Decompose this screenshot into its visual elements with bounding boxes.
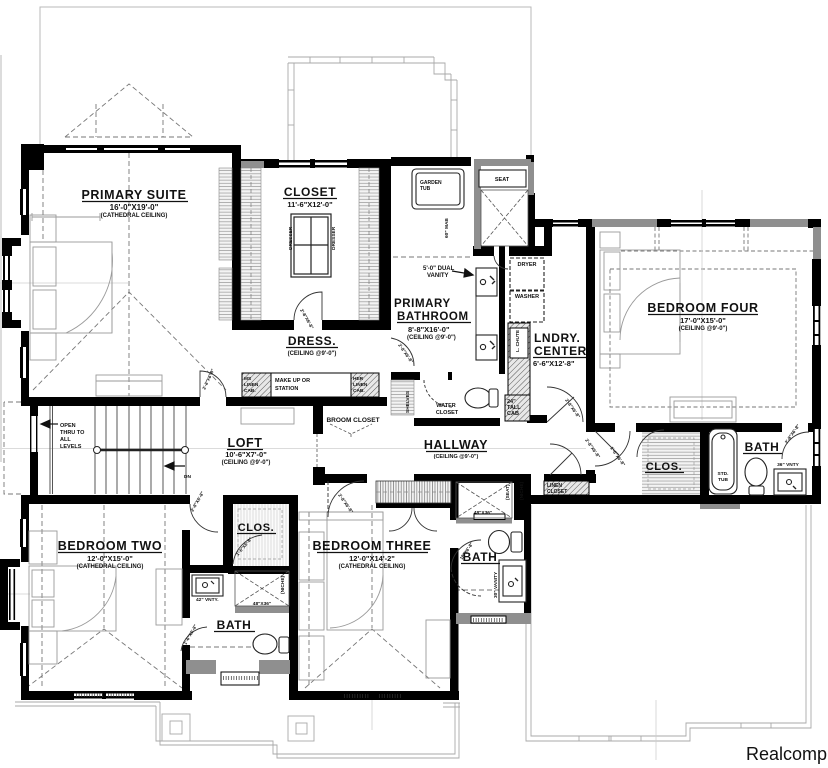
svg-text:(CEILING @9'-0"): (CEILING @9'-0")	[288, 351, 337, 357]
svg-text:Realcomp: Realcomp	[746, 744, 827, 764]
svg-text:6'-6"X12'-8": 6'-6"X12'-8"	[533, 359, 575, 368]
svg-text:36" VNTY: 36" VNTY	[777, 462, 800, 468]
svg-text:VANITY: VANITY	[427, 273, 449, 279]
svg-text:BEDROOM FOUR: BEDROOM FOUR	[647, 301, 758, 315]
svg-text:BEDROOM THREE: BEDROOM THREE	[313, 539, 432, 553]
svg-text:PRIMARY: PRIMARY	[394, 298, 451, 310]
svg-text:(NICHE): (NICHE)	[519, 481, 525, 500]
svg-text:BATH: BATH	[217, 618, 252, 632]
svg-text:SHELVES: SHELVES	[405, 390, 411, 413]
svg-text:LINEN: LINEN	[353, 382, 368, 388]
svg-text:12'-0"X15'-0": 12'-0"X15'-0"	[87, 554, 133, 563]
svg-text:BATHROOM: BATHROOM	[397, 311, 469, 323]
svg-text:17'-0"X15'-0": 17'-0"X15'-0"	[680, 316, 726, 325]
svg-text:10'-6"X7'-0": 10'-6"X7'-0"	[225, 450, 267, 459]
svg-text:BROOM CLOSET: BROOM CLOSET	[326, 417, 379, 424]
svg-text:DRESSER: DRESSER	[331, 226, 337, 250]
svg-text:WATER: WATER	[436, 403, 455, 409]
svg-text:LEVELS: LEVELS	[60, 444, 82, 450]
svg-text:LINEN: LINEN	[244, 382, 259, 388]
svg-text:48"X36": 48"X36"	[474, 510, 492, 516]
svg-text:SEAT: SEAT	[495, 177, 510, 183]
svg-text:(NICHE): (NICHE)	[280, 575, 286, 594]
svg-text:TUB: TUB	[420, 186, 431, 192]
svg-text:(CEILING @9'-0"): (CEILING @9'-0")	[407, 335, 456, 341]
svg-text:THRU TO: THRU TO	[60, 430, 85, 436]
svg-text:OPEN: OPEN	[60, 423, 76, 429]
svg-text:(CATHEDRAL CEILING): (CATHEDRAL CEILING)	[77, 564, 144, 570]
svg-text:5'-0" DUAL: 5'-0" DUAL	[423, 266, 455, 272]
svg-text:30" VANITY: 30" VANITY	[493, 571, 499, 598]
svg-text:HER: HER	[353, 376, 364, 382]
svg-text:60" MAB: 60" MAB	[444, 218, 450, 238]
svg-text:STATION: STATION	[275, 386, 298, 392]
svg-text:CAB.: CAB.	[353, 388, 365, 394]
svg-text:WASHER: WASHER	[515, 294, 539, 300]
svg-text:CLOSET: CLOSET	[436, 410, 459, 416]
svg-text:CAB: CAB	[507, 411, 519, 417]
svg-text:MAKE UP OR: MAKE UP OR	[275, 378, 310, 384]
svg-text:16'-0"X19'-0": 16'-0"X19'-0"	[110, 203, 159, 212]
svg-text:CAB.: CAB.	[244, 388, 256, 394]
svg-text:CLOSET: CLOSET	[547, 489, 567, 495]
svg-text:ALL: ALL	[60, 437, 71, 443]
svg-text:DRYER: DRYER	[517, 262, 536, 268]
svg-text:LNDRY.: LNDRY.	[534, 331, 581, 345]
svg-text:(CATHEDRAL CEILING): (CATHEDRAL CEILING)	[339, 564, 406, 570]
svg-text:(CEILING @9'-0"): (CEILING @9'-0")	[434, 454, 479, 460]
svg-text:48"X36": 48"X36"	[253, 601, 271, 607]
svg-text:(CEILING @9'-0"): (CEILING @9'-0")	[679, 326, 728, 332]
svg-text:L. CHUTE: L. CHUTE	[515, 329, 521, 352]
svg-text:LOFT: LOFT	[227, 436, 262, 450]
svg-text:42" VNTY.: 42" VNTY.	[196, 597, 219, 603]
svg-text:11'-6"X12'-0": 11'-6"X12'-0"	[287, 200, 333, 209]
svg-text:CLOSET: CLOSET	[284, 185, 336, 199]
svg-text:HALLWAY: HALLWAY	[424, 438, 488, 452]
svg-text:CLOS.: CLOS.	[646, 461, 683, 473]
svg-text:DN: DN	[184, 474, 191, 480]
svg-text:MS: MS	[244, 376, 252, 382]
svg-text:STD.: STD.	[718, 471, 729, 477]
svg-text:DRESS.: DRESS.	[288, 334, 336, 348]
svg-text:BATH: BATH	[745, 440, 780, 454]
svg-text:TUB: TUB	[718, 477, 728, 483]
svg-text:CLOS.: CLOS.	[238, 522, 275, 534]
svg-text:PRIMARY SUITE: PRIMARY SUITE	[81, 188, 186, 202]
svg-text:BEDROOM TWO: BEDROOM TWO	[58, 539, 163, 553]
svg-text:CENTER: CENTER	[534, 344, 587, 358]
svg-text:(CATHEDRAL CEILING): (CATHEDRAL CEILING)	[101, 213, 168, 219]
svg-text:(SEAT): (SEAT)	[505, 484, 511, 500]
svg-text:12'-0"X14'-2": 12'-0"X14'-2"	[349, 554, 395, 563]
svg-text:8'-8"X16'-0": 8'-8"X16'-0"	[408, 325, 450, 334]
svg-text:(CEILING @9'-0"): (CEILING @9'-0")	[222, 460, 271, 466]
